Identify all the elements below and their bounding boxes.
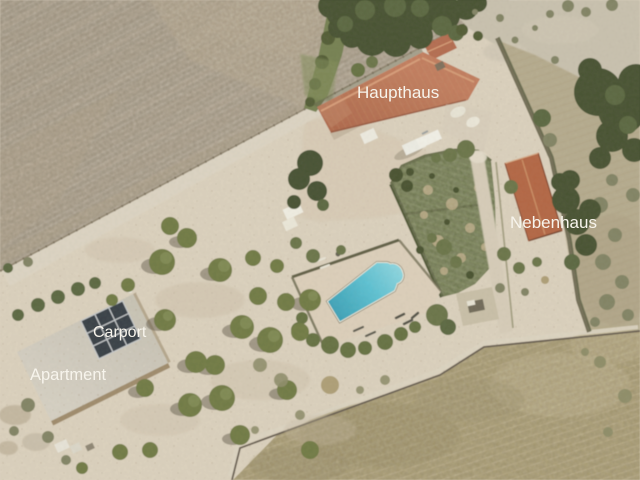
svg-text:Apartment: Apartment	[30, 366, 107, 384]
svg-text:Haupthaus: Haupthaus	[357, 83, 439, 102]
svg-text:Carport: Carport	[93, 324, 147, 341]
svg-text:Nebenhaus: Nebenhaus	[510, 213, 597, 232]
